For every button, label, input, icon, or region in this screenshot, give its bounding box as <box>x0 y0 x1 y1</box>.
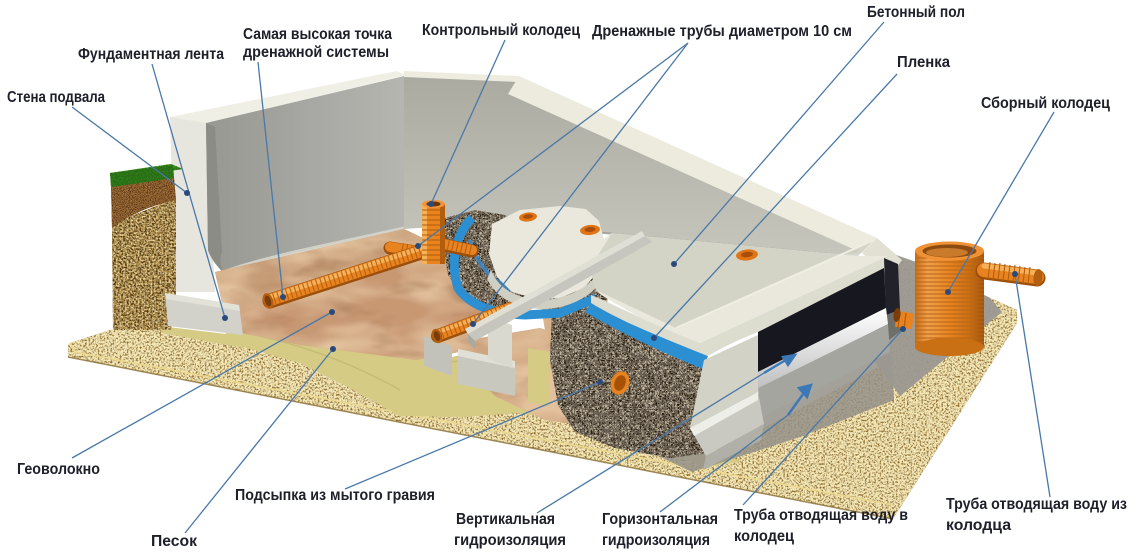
svg-text:Контрольный колодец: Контрольный колодец <box>422 22 580 39</box>
svg-text:гидроизоляция: гидроизоляция <box>602 532 710 549</box>
svg-text:Горизонтальная: Горизонтальная <box>602 511 718 528</box>
svg-text:Труба отводящая воду в: Труба отводящая воду в <box>734 507 908 524</box>
svg-text:гидроизоляция: гидроизоляция <box>454 532 566 549</box>
svg-text:Сборный колодец: Сборный колодец <box>981 95 1110 112</box>
svg-text:Самая высокая точка: Самая высокая точка <box>243 26 392 43</box>
svg-text:Дренажные трубы диаметром 10 с: Дренажные трубы диаметром 10 см <box>592 23 852 40</box>
svg-text:Стена подвала: Стена подвала <box>7 89 105 106</box>
svg-text:Пленка: Пленка <box>897 54 950 71</box>
svg-text:колодец: колодец <box>734 528 794 545</box>
svg-text:Подсыпка из мытого гравия: Подсыпка из мытого гравия <box>235 487 435 504</box>
svg-text:дренажной системы: дренажной системы <box>243 44 389 61</box>
svg-text:Геоволокно: Геоволокно <box>17 461 100 478</box>
svg-text:Бетонный пол: Бетонный пол <box>867 4 965 21</box>
svg-text:колодца: колодца <box>946 517 1011 534</box>
svg-text:Песок: Песок <box>151 533 197 550</box>
svg-text:Вертикальная: Вертикальная <box>456 511 555 528</box>
svg-text:Фундаментная лента: Фундаментная лента <box>78 46 224 63</box>
svg-text:Труба отводящая воду из: Труба отводящая воду из <box>946 496 1127 513</box>
